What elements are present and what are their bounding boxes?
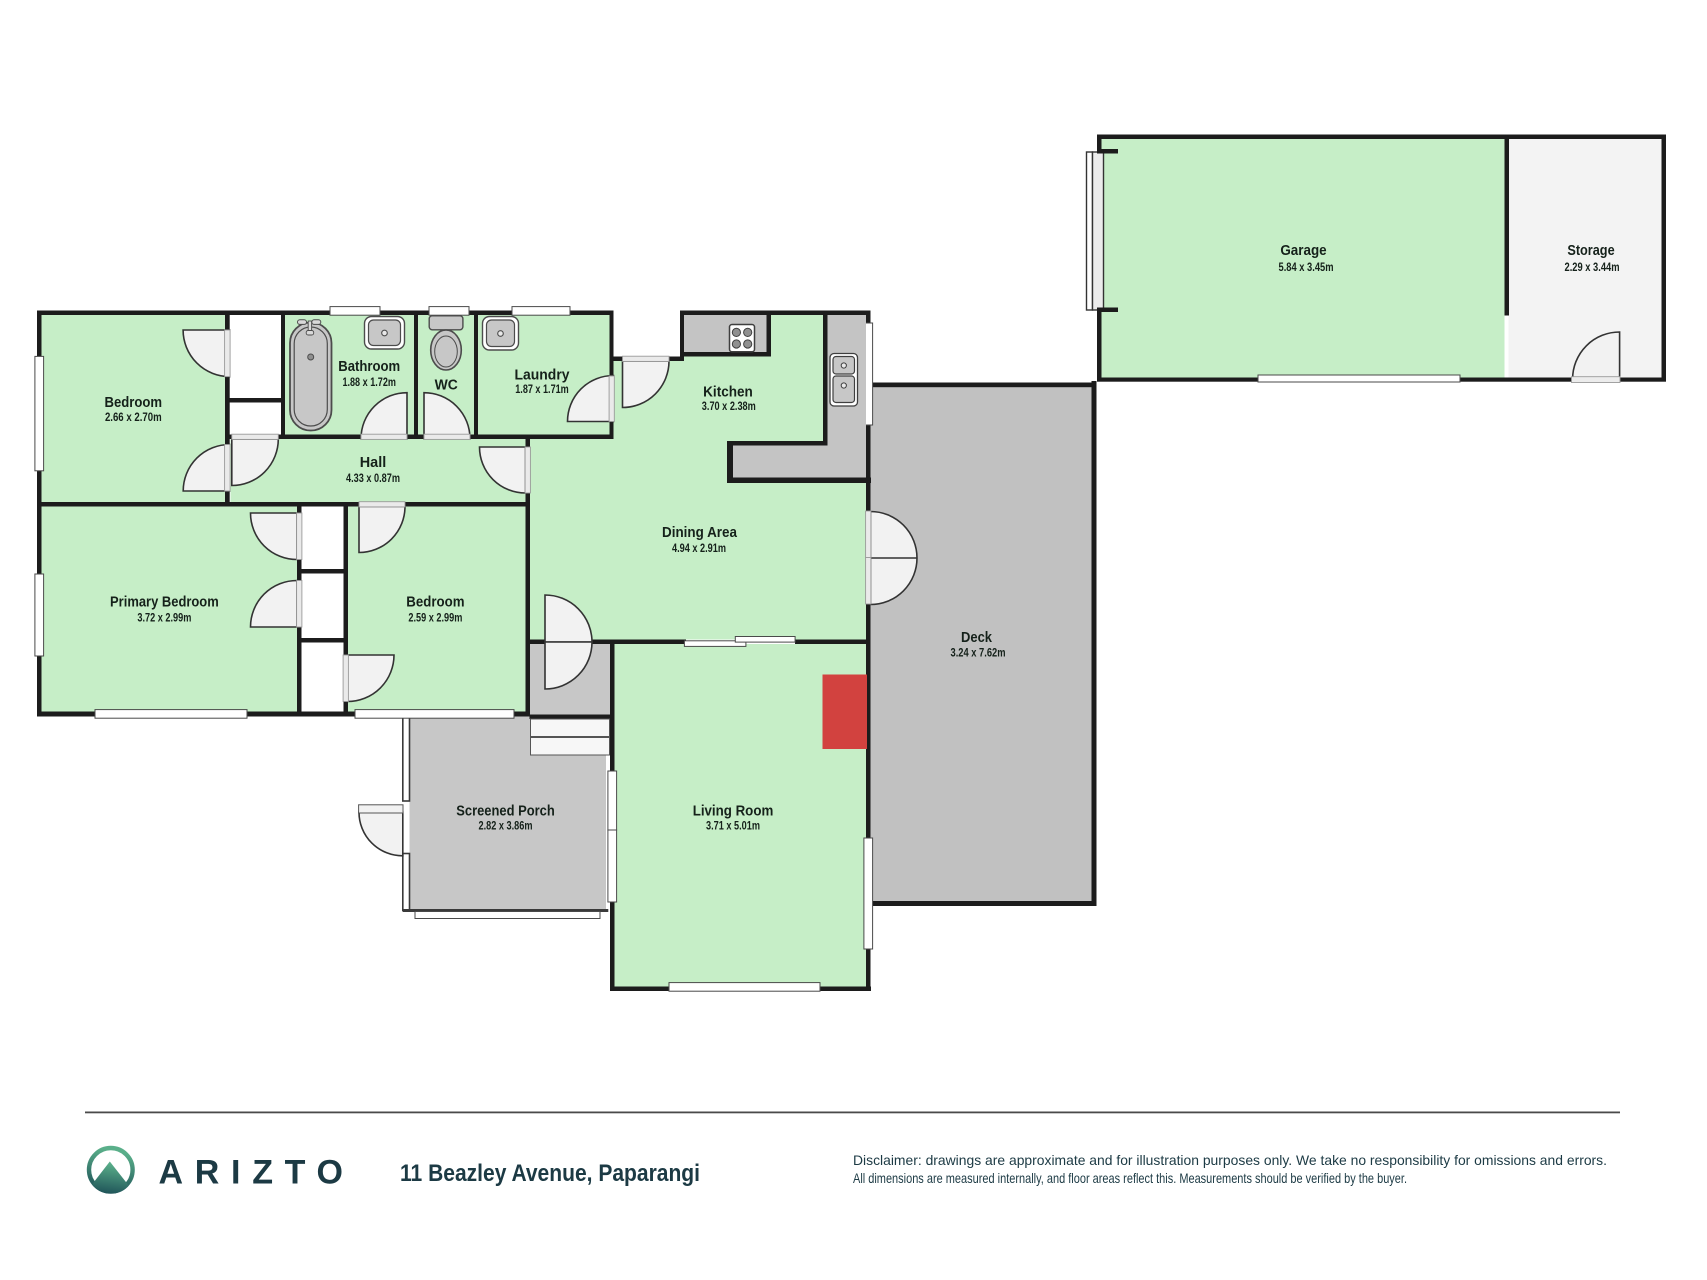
- svg-text:2.82 x 3.86m: 2.82 x 3.86m: [479, 819, 533, 833]
- svg-text:Dining Area: Dining Area: [662, 525, 738, 541]
- svg-text:Bedroom: Bedroom: [105, 395, 163, 411]
- svg-text:Living Room: Living Room: [693, 804, 774, 820]
- svg-text:3.24 x 7.62m: 3.24 x 7.62m: [951, 645, 1006, 659]
- svg-text:2.29 x 3.44m: 2.29 x 3.44m: [1565, 260, 1620, 274]
- svg-text:Hall: Hall: [360, 455, 387, 471]
- svg-text:1.87 x 1.71m: 1.87 x 1.71m: [515, 382, 569, 396]
- svg-text:3.70 x 2.38m: 3.70 x 2.38m: [702, 399, 756, 413]
- svg-text:2.59 x 2.99m: 2.59 x 2.99m: [408, 610, 462, 624]
- svg-text:4.33 x 0.87m: 4.33 x 0.87m: [346, 471, 400, 485]
- svg-text:5.84 x 3.45m: 5.84 x 3.45m: [1279, 260, 1334, 274]
- svg-text:1.88 x 1.72m: 1.88 x 1.72m: [342, 375, 396, 389]
- svg-text:4.94 x 2.91m: 4.94 x 2.91m: [672, 541, 726, 555]
- svg-text:Disclaimer: drawings are appro: Disclaimer: drawings are approximate and…: [853, 1152, 1607, 1168]
- svg-text:3.71 x 5.01m: 3.71 x 5.01m: [706, 819, 760, 833]
- svg-text:Laundry: Laundry: [515, 368, 570, 384]
- svg-text:Storage: Storage: [1567, 243, 1614, 259]
- svg-text:3.72 x 2.99m: 3.72 x 2.99m: [137, 610, 191, 624]
- svg-text:2.66 x 2.70m: 2.66 x 2.70m: [105, 410, 162, 424]
- svg-text:Deck: Deck: [961, 630, 993, 646]
- svg-text:Bathroom: Bathroom: [338, 359, 400, 375]
- svg-text:All dimensions are measured in: All dimensions are measured internally, …: [853, 1170, 1407, 1186]
- svg-text:Kitchen: Kitchen: [703, 385, 753, 401]
- svg-text:Bedroom: Bedroom: [406, 595, 464, 611]
- svg-text:Primary Bedroom: Primary Bedroom: [110, 595, 219, 611]
- svg-text:Screened Porch: Screened Porch: [456, 804, 555, 820]
- svg-text:Garage: Garage: [1280, 243, 1326, 259]
- svg-text:11 Beazley Avenue, Paparangi: 11 Beazley Avenue, Paparangi: [400, 1160, 700, 1187]
- svg-text:WC: WC: [435, 377, 459, 393]
